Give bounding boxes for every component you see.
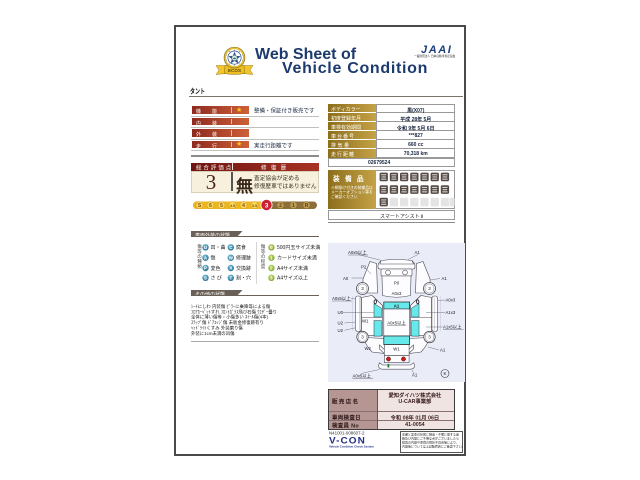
svg-text:U2: U2 bbox=[337, 321, 343, 326]
svg-text:4: 4 bbox=[242, 203, 245, 209]
svg-text:A4サイズ以上: A4サイズ以上 bbox=[277, 275, 308, 282]
svg-text:A0: A0 bbox=[343, 276, 349, 281]
svg-text:W1: W1 bbox=[393, 347, 400, 352]
svg-text:A1: A1 bbox=[412, 373, 418, 378]
svg-text:500円玉サイズ未満: 500円玉サイズ未満 bbox=[277, 244, 320, 251]
svg-text:A1: A1 bbox=[414, 250, 420, 255]
svg-text:A1x3: A1x3 bbox=[445, 310, 455, 315]
svg-text:修理跡: 修理跡 bbox=[236, 255, 251, 262]
svg-text:A1: A1 bbox=[441, 276, 447, 281]
svg-text:P0: P0 bbox=[393, 281, 399, 286]
svg-text:A4サイズ未満: A4サイズ未満 bbox=[277, 265, 308, 272]
svg-text:腐食: 腐食 bbox=[236, 244, 246, 251]
svg-text:R: R bbox=[305, 203, 309, 209]
svg-text:A1: A1 bbox=[393, 304, 399, 309]
svg-text:傷: 傷 bbox=[211, 255, 216, 262]
svg-text:凹・曲: 凹・曲 bbox=[211, 244, 226, 251]
svg-text:カードサイズ未満: カードサイズ未満 bbox=[277, 255, 317, 262]
svg-text:2: 2 bbox=[279, 203, 282, 209]
svg-text:A0x5以上: A0x5以上 bbox=[332, 295, 351, 301]
svg-text:3.5: 3.5 bbox=[252, 204, 257, 208]
svg-text:4.5: 4.5 bbox=[230, 204, 235, 208]
svg-text:ECOS: ECOS bbox=[228, 68, 241, 73]
svg-text:W1: W1 bbox=[362, 319, 369, 324]
svg-text:P2: P2 bbox=[361, 265, 367, 270]
svg-text:割・穴: 割・穴 bbox=[236, 275, 251, 282]
svg-text:A0x3: A0x3 bbox=[391, 291, 401, 296]
svg-text:P: P bbox=[204, 266, 207, 271]
svg-text:K: K bbox=[443, 371, 446, 376]
svg-text:A0x5以上: A0x5以上 bbox=[348, 249, 367, 255]
svg-text:A0x5以上: A0x5以上 bbox=[352, 373, 371, 379]
svg-text:類: 類 bbox=[197, 263, 202, 270]
svg-text:A1: A1 bbox=[440, 348, 446, 353]
svg-text:A0x3: A0x3 bbox=[445, 298, 455, 303]
svg-text:U: U bbox=[204, 245, 207, 250]
svg-text:S: S bbox=[204, 275, 207, 280]
svg-text:X: X bbox=[229, 266, 232, 271]
svg-text:度: 度 bbox=[261, 263, 266, 270]
svg-text:T: T bbox=[229, 275, 232, 280]
svg-text:A1x5以上: A1x5以上 bbox=[443, 324, 462, 330]
svg-text:6: 6 bbox=[209, 203, 212, 209]
svg-text:3: 3 bbox=[265, 202, 269, 209]
svg-text:1: 1 bbox=[292, 203, 295, 209]
svg-text:さ び: さ び bbox=[211, 275, 222, 282]
svg-text:A0x5以上: A0x5以上 bbox=[387, 320, 406, 326]
svg-text:W2: W2 bbox=[364, 346, 371, 351]
svg-text:U2: U2 bbox=[337, 328, 343, 333]
svg-text:U0: U0 bbox=[337, 310, 343, 315]
svg-text:5: 5 bbox=[220, 203, 223, 209]
svg-text:交換跡: 交換跡 bbox=[236, 265, 251, 272]
svg-text:変色: 変色 bbox=[211, 265, 221, 272]
